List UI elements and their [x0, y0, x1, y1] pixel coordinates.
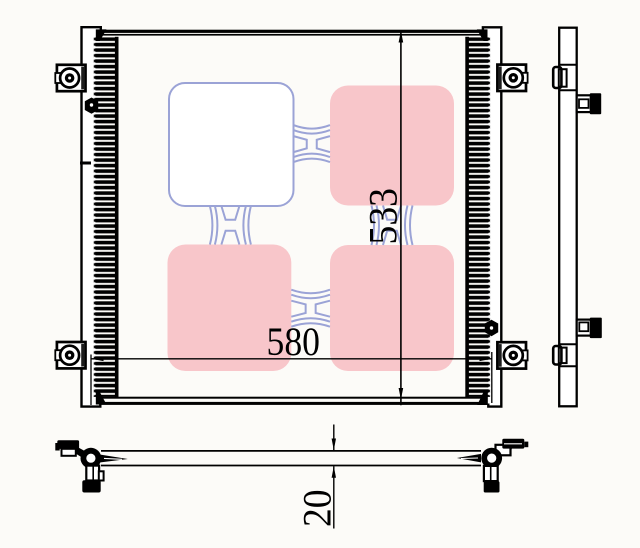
svg-text:580: 580: [267, 319, 321, 364]
svg-text:533: 533: [361, 188, 406, 245]
svg-text:20: 20: [295, 490, 340, 528]
